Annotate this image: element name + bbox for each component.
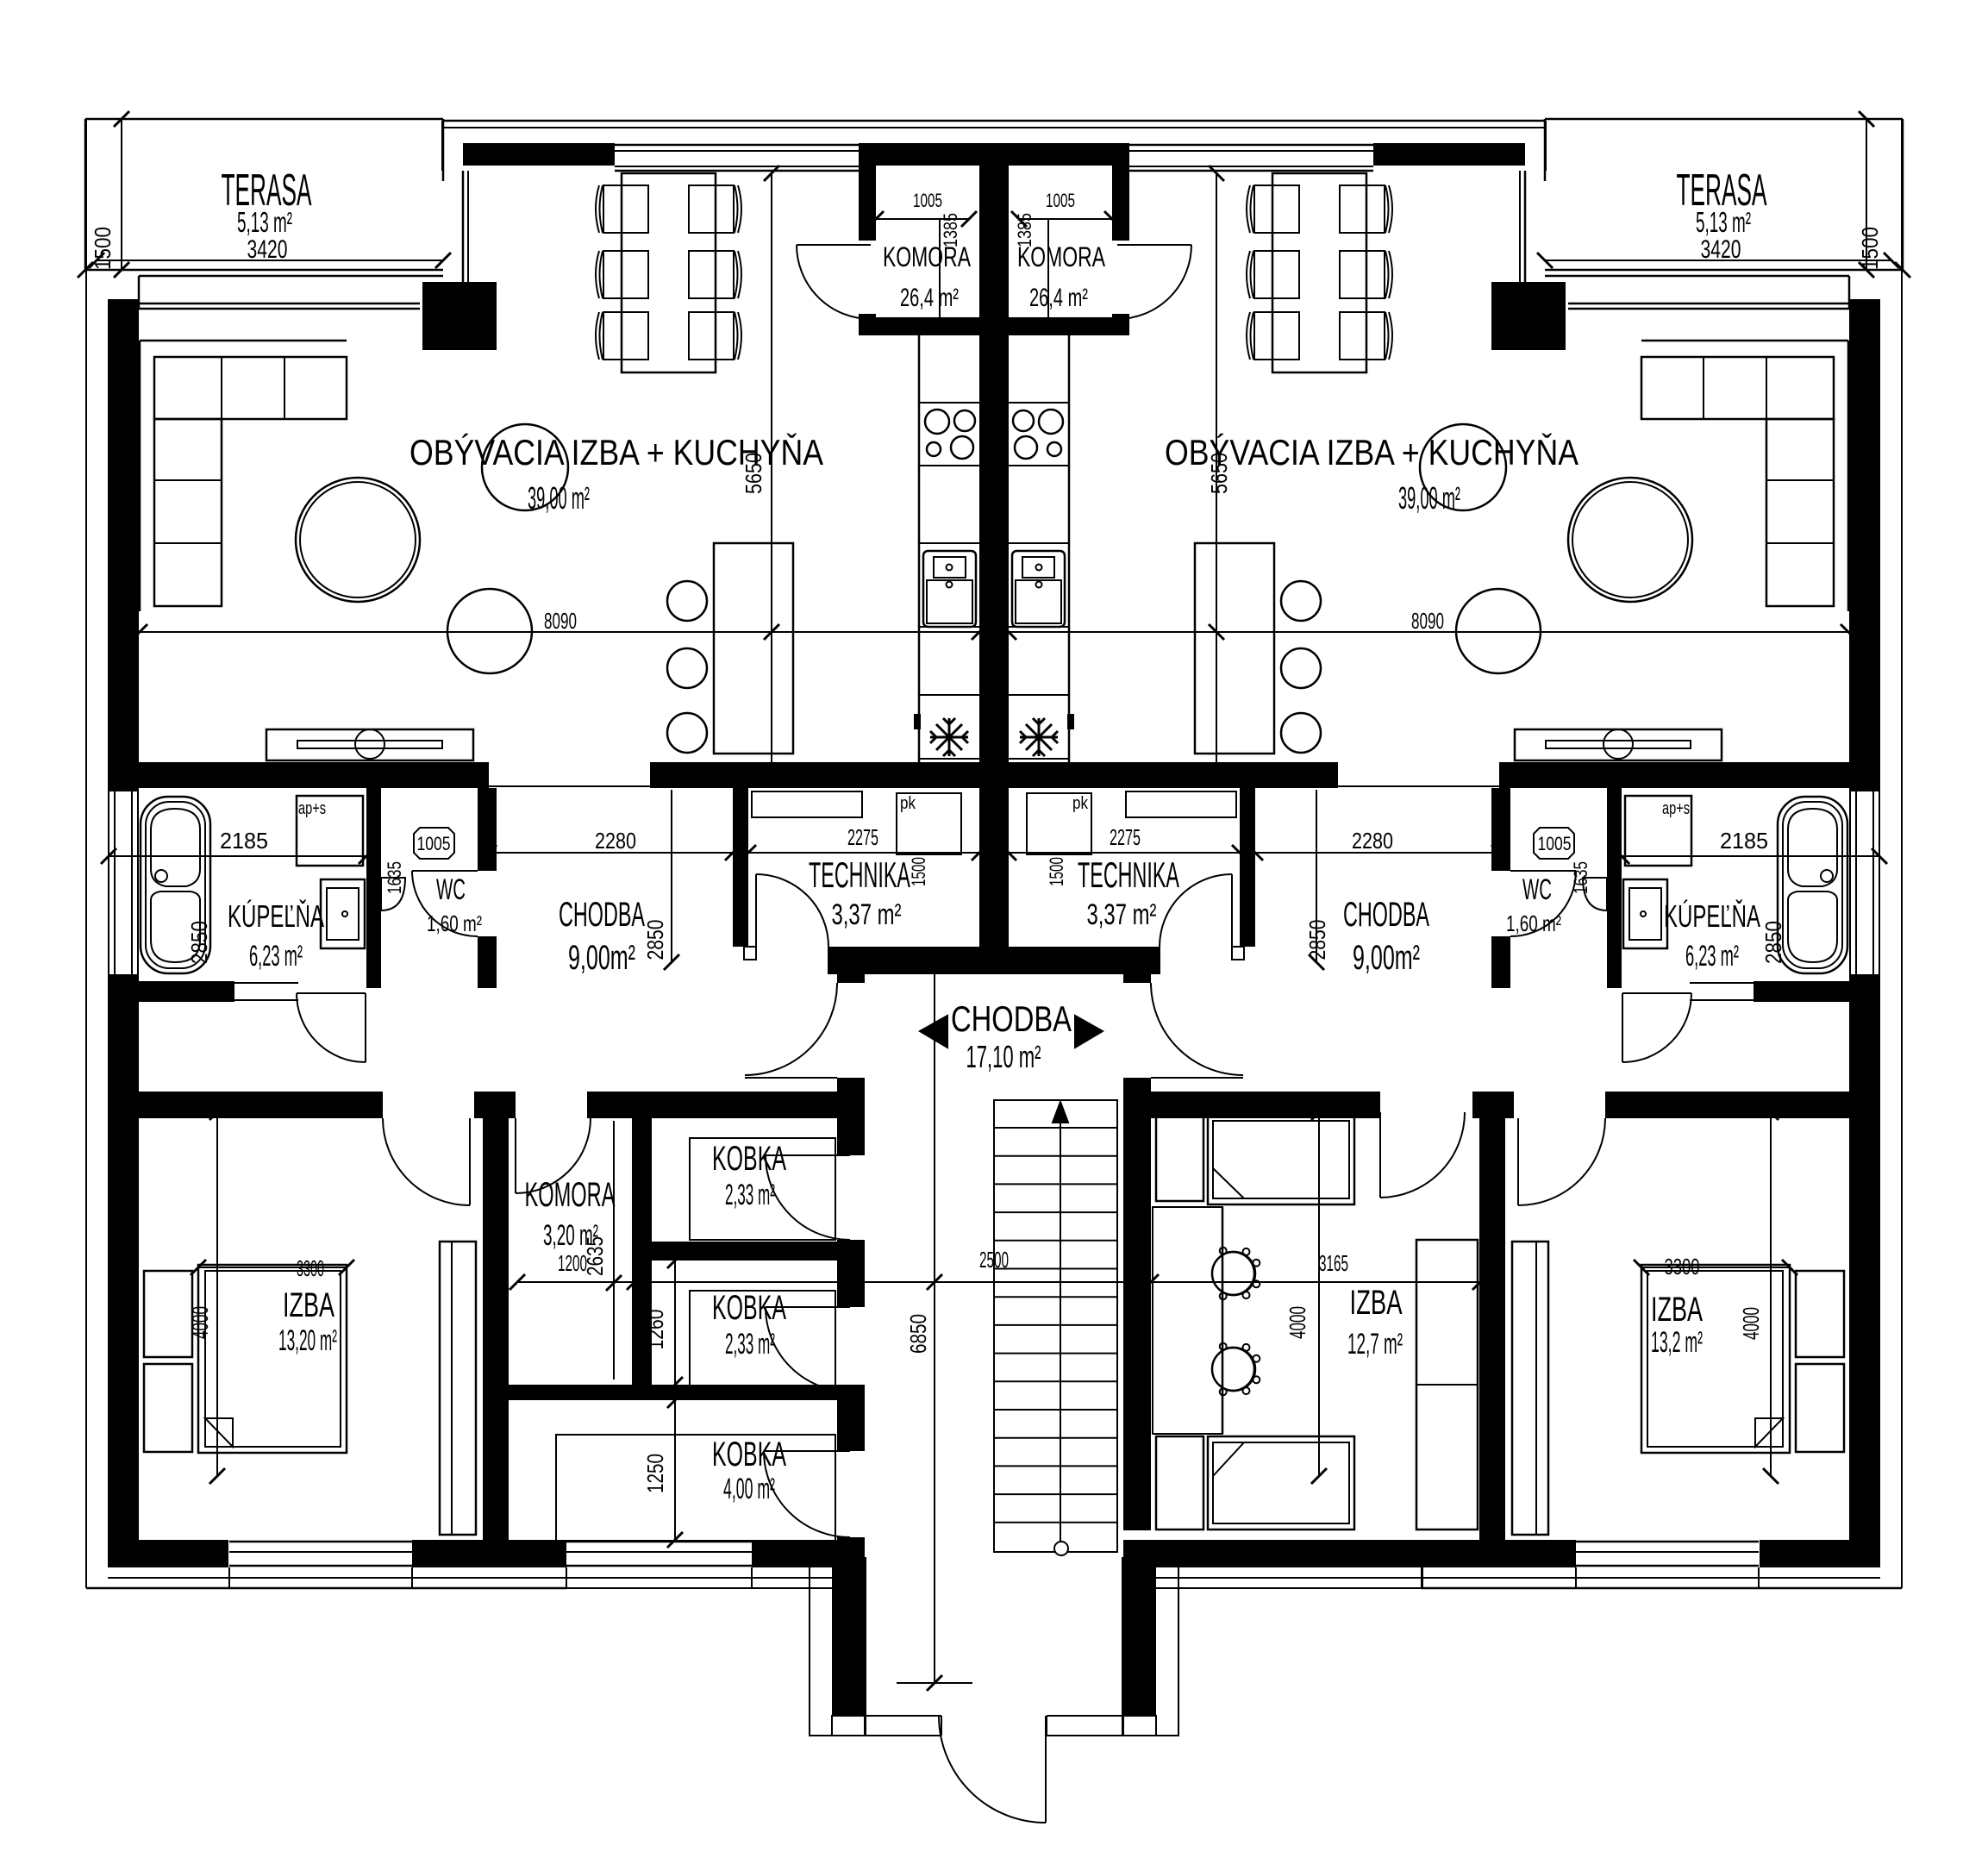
svg-text:2185: 2185 (220, 828, 268, 854)
svg-text:1005: 1005 (1538, 833, 1572, 854)
svg-text:3,37 m²: 3,37 m² (1087, 898, 1157, 931)
svg-text:2850: 2850 (186, 921, 212, 964)
svg-text:TECHNIKA: TECHNIKA (809, 854, 910, 895)
svg-text:WC: WC (436, 873, 466, 906)
svg-text:KÚPEĽŇA: KÚPEĽŇA (1664, 898, 1760, 934)
svg-text:pk: pk (900, 794, 916, 813)
svg-text:CHODBA: CHODBA (1343, 896, 1429, 934)
svg-text:IZBA: IZBA (1350, 1284, 1403, 1322)
svg-text:6850: 6850 (905, 1314, 931, 1354)
svg-text:1500: 1500 (1046, 857, 1067, 886)
svg-text:2,33 m²: 2,33 m² (725, 1328, 775, 1361)
svg-text:6,23 m²: 6,23 m² (1685, 940, 1739, 973)
svg-text:13,20 m²: 13,20 m² (278, 1324, 337, 1357)
svg-text:1005: 1005 (417, 833, 451, 854)
svg-text:KOBKA: KOBKA (712, 1289, 786, 1327)
svg-text:1500: 1500 (908, 857, 929, 886)
svg-text:8090: 8090 (544, 608, 577, 634)
svg-text:1385: 1385 (940, 213, 961, 247)
svg-text:1,60 m²: 1,60 m² (427, 910, 482, 936)
svg-text:3300: 3300 (297, 1255, 324, 1281)
svg-text:2850: 2850 (1304, 920, 1330, 960)
svg-text:4,00 m²: 4,00 m² (723, 1473, 775, 1505)
svg-text:3420: 3420 (247, 235, 288, 264)
svg-text:5,13 m²: 5,13 m² (1696, 206, 1751, 238)
svg-text:2280: 2280 (1352, 828, 1393, 854)
svg-text:KOBKA: KOBKA (712, 1436, 786, 1473)
svg-text:2500: 2500 (979, 1247, 1009, 1273)
svg-text:KOMORA: KOMORA (525, 1176, 616, 1214)
svg-text:5650: 5650 (1206, 453, 1232, 494)
svg-text:3165: 3165 (1319, 1250, 1348, 1276)
svg-text:TECHNIKA: TECHNIKA (1078, 854, 1179, 895)
svg-text:CHODBA: CHODBA (951, 998, 1072, 1039)
svg-text:1005: 1005 (913, 190, 942, 211)
svg-text:pk: pk (1072, 794, 1089, 813)
svg-text:ap+s: ap+s (1662, 799, 1690, 818)
svg-text:3420: 3420 (1701, 235, 1741, 264)
svg-text:1,60 m²: 1,60 m² (1506, 910, 1561, 936)
svg-text:3,37 m²: 3,37 m² (832, 898, 902, 931)
svg-text:26,4 m²: 26,4 m² (900, 284, 959, 312)
svg-text:9,00m²: 9,00m² (1353, 939, 1420, 977)
svg-text:IZBA: IZBA (283, 1286, 334, 1324)
svg-text:13,2 m²: 13,2 m² (1651, 1326, 1703, 1359)
svg-text:ap+s: ap+s (298, 799, 326, 818)
svg-text:2,33 m²: 2,33 m² (725, 1179, 775, 1211)
svg-text:KOBKA: KOBKA (712, 1140, 786, 1178)
svg-text:2185: 2185 (1720, 828, 1768, 854)
svg-text:6,23 m²: 6,23 m² (249, 940, 303, 973)
svg-text:WC: WC (1522, 873, 1552, 906)
svg-text:8090: 8090 (1411, 608, 1444, 634)
svg-text:1500: 1500 (90, 227, 116, 270)
svg-text:26,4 m²: 26,4 m² (1029, 284, 1088, 312)
svg-text:1635: 1635 (1570, 861, 1591, 894)
svg-text:1260: 1260 (642, 1310, 668, 1350)
svg-text:2275: 2275 (1110, 824, 1141, 850)
svg-text:1005: 1005 (1046, 190, 1075, 211)
svg-text:3300: 3300 (1665, 1254, 1700, 1279)
svg-text:1385: 1385 (1014, 213, 1035, 247)
svg-text:39,00 m²: 39,00 m² (1398, 480, 1460, 516)
svg-text:2280: 2280 (595, 828, 636, 854)
svg-text:2635: 2635 (582, 1236, 608, 1276)
svg-text:4000: 4000 (1738, 1307, 1764, 1340)
svg-text:KÚPEĽŇA: KÚPEĽŇA (228, 898, 324, 934)
svg-text:CHODBA: CHODBA (559, 896, 645, 934)
svg-text:39,00 m²: 39,00 m² (528, 480, 590, 516)
svg-text:1500: 1500 (1857, 227, 1883, 270)
svg-text:1250: 1250 (642, 1454, 668, 1493)
svg-text:1635: 1635 (384, 861, 405, 894)
svg-text:4000: 4000 (1285, 1306, 1310, 1339)
svg-text:5650: 5650 (741, 453, 766, 494)
svg-text:9,00m²: 9,00m² (568, 939, 635, 977)
svg-text:IZBA: IZBA (1651, 1291, 1703, 1329)
svg-text:2850: 2850 (1760, 921, 1786, 964)
svg-text:12,7 m²: 12,7 m² (1347, 1328, 1403, 1361)
svg-text:2275: 2275 (847, 824, 878, 850)
svg-text:5,13 m²: 5,13 m² (237, 206, 292, 238)
svg-text:17,10 m²: 17,10 m² (966, 1039, 1041, 1074)
svg-text:2850: 2850 (642, 920, 668, 960)
svg-text:4000: 4000 (187, 1306, 213, 1339)
